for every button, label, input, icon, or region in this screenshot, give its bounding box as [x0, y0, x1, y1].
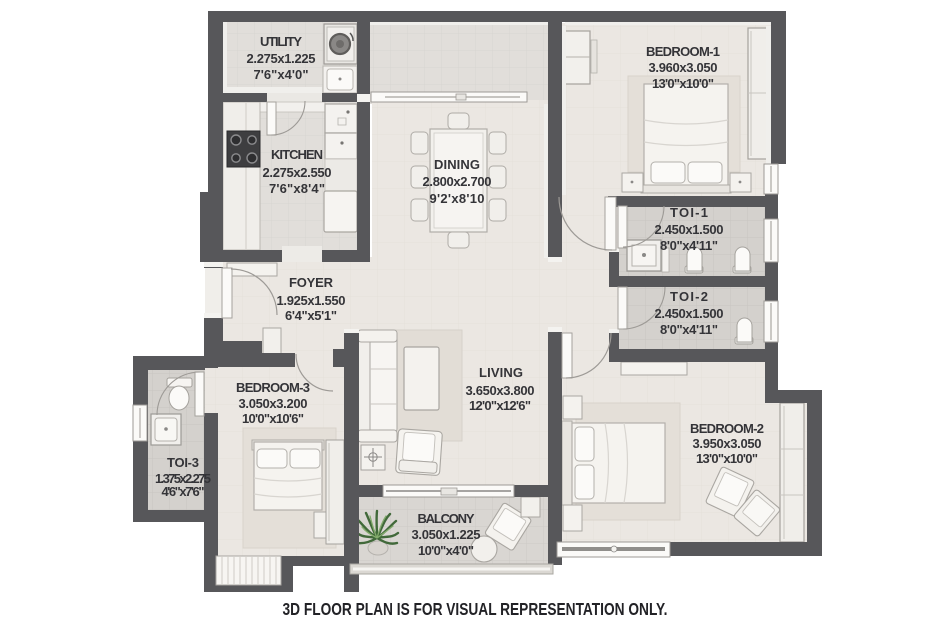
svg-text:BEDROOM-2: BEDROOM-2: [690, 421, 764, 436]
svg-text:KITCHEN: KITCHEN: [271, 147, 323, 162]
svg-text:8'0"x4'11": 8'0"x4'11": [660, 322, 718, 337]
svg-text:12'0"x12'6": 12'0"x12'6": [469, 398, 531, 413]
svg-text:7'6"x4'0": 7'6"x4'0": [254, 67, 309, 82]
svg-text:3.050x1.225: 3.050x1.225: [412, 527, 481, 542]
svg-text:7'6"x8'4": 7'6"x8'4": [269, 181, 325, 196]
svg-text:3.950x3.050: 3.950x3.050: [693, 436, 762, 451]
svg-text:6'4"x5'1": 6'4"x5'1": [285, 308, 337, 323]
svg-text:13'0"x10'0": 13'0"x10'0": [696, 451, 758, 466]
svg-text:2.450x1.500: 2.450x1.500: [655, 306, 724, 321]
svg-text:2.275x1.225: 2.275x1.225: [247, 51, 316, 66]
svg-text:TOI-3: TOI-3: [167, 455, 199, 470]
svg-text:2.800x2.700: 2.800x2.700: [423, 174, 492, 189]
svg-text:13'0"x10'0": 13'0"x10'0": [652, 76, 714, 91]
svg-text:3.050x3.200: 3.050x3.200: [239, 396, 308, 411]
svg-text:FOYER: FOYER: [289, 275, 334, 290]
svg-text:3.960x3.050: 3.960x3.050: [649, 60, 718, 75]
svg-text:LIVING: LIVING: [479, 365, 523, 380]
svg-text:TOI-1: TOI-1: [670, 205, 708, 220]
svg-text:8'0"x4'11": 8'0"x4'11": [660, 238, 718, 253]
svg-text:10'0"x4'0": 10'0"x4'0": [418, 543, 474, 558]
svg-text:2.275x2.550: 2.275x2.550: [263, 165, 332, 180]
svg-text:2.450x1.500: 2.450x1.500: [655, 222, 724, 237]
svg-text:TOI-2: TOI-2: [670, 289, 708, 304]
svg-text:BALCONY: BALCONY: [418, 511, 475, 526]
svg-text:4'6"x7'6": 4'6"x7'6": [162, 484, 205, 499]
svg-text:1.925x1.550: 1.925x1.550: [277, 293, 346, 308]
svg-text:3D FLOOR PLAN IS FOR VISUAL RE: 3D FLOOR PLAN IS FOR VISUAL REPRESENTATI…: [283, 599, 668, 619]
svg-text:9'2'x8'10: 9'2'x8'10: [430, 191, 485, 206]
svg-text:10'0"x10'6": 10'0"x10'6": [242, 411, 304, 426]
svg-text:DINING: DINING: [434, 157, 480, 172]
svg-text:3.650x3.800: 3.650x3.800: [466, 383, 535, 398]
svg-text:BEDROOM-3: BEDROOM-3: [236, 380, 310, 395]
svg-text:UTILITY: UTILITY: [260, 34, 302, 49]
svg-text:BEDROOM-1: BEDROOM-1: [646, 44, 720, 59]
